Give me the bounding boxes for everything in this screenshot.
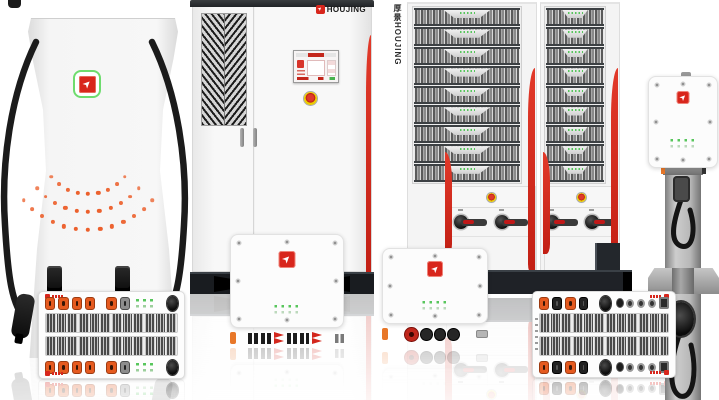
module-handle-notch [562,10,588,18]
module-slot [414,144,520,162]
connector-redarr [312,348,323,360]
module-fan-grille [539,313,669,333]
wall-box-face [382,368,488,400]
module-side-ticks [535,318,538,354]
module-led-row [568,70,583,72]
connector-darkround [435,329,446,340]
door-handle-left [240,128,244,147]
estop-band [447,384,535,400]
connector-blackpair [287,349,297,360]
charging-gun-right [148,377,173,400]
module-led-row [568,148,583,150]
brand-logo-icon [677,91,690,104]
connector-darkround [448,353,459,364]
connector-orange [72,361,82,374]
connector-orange [45,297,55,310]
status-led-grid [275,305,300,314]
module-slot [414,27,520,45]
connector-darksq [659,297,669,309]
bottom-connector-row [382,326,488,342]
brand-text-mini [52,383,64,386]
connector-orange [106,361,116,374]
connector-roundS [617,299,623,307]
brand-text-mini [650,371,662,374]
module-slot [546,125,604,143]
hmi-value-cells [327,60,336,76]
rotary-switch-handle [461,367,487,374]
estop-band [545,384,617,400]
wall-box-face [648,76,718,168]
indicator-dot [142,207,146,211]
connector-orange [565,297,575,310]
connector-redround [405,328,418,341]
rotary-switch [454,214,487,230]
module-led-row [568,168,583,170]
connector-orange [565,361,575,374]
brand-logo-mini [664,370,669,375]
connector-orange [72,297,82,310]
indicator-dot [123,175,127,179]
module-handle-notch [444,29,491,37]
rotary-switch-handle [552,219,578,226]
red-accent-stripe [366,35,371,272]
indicator-dot [36,187,40,191]
wall-box-inverter-1 [230,346,344,400]
module-handle-notch [444,127,491,135]
rectifier-module-wide [532,291,676,378]
red-accent-stripe [445,338,452,400]
module-handle-notch [562,146,588,154]
connector-roundL [167,360,178,375]
indicator-dot [66,187,70,191]
connector-orange [539,383,549,396]
indicator-dot [108,206,112,210]
module-led-row [568,109,583,111]
connector-orange [58,297,68,310]
cabinet-doors: HOUJING [192,7,372,272]
rotary-switch-handle [461,219,487,226]
connector-ringS [637,299,645,308]
connector-ringS [637,385,645,394]
module-bay [412,6,522,184]
bottom-connector-row [230,330,344,346]
estop-band [545,187,617,208]
connector-orange [539,297,549,310]
module-fan-grille [45,336,178,356]
indicator-dot [30,207,34,211]
module-connector-row-top [533,295,675,311]
hmi-logo-block [297,60,304,68]
indicator-dot [115,182,119,186]
door-handle-right [253,128,257,147]
hmi-display [293,50,339,83]
connector-orange [106,297,116,310]
indicator-dot [44,195,48,199]
brand-logo-icon [279,251,296,268]
emergency-stop-button [577,391,586,400]
module-handle-notch [444,10,491,18]
brand-wordmark-text: HOUJING [327,5,366,14]
connector-darkround [448,329,459,340]
indicator-dot [50,220,54,224]
module-handle-notch [562,88,588,96]
status-led-grid [275,378,300,387]
brand-logo-mini [45,371,50,376]
connector-darkround [421,353,432,364]
connector-orange [565,383,575,396]
connector-redarr [274,332,285,344]
module-slot [414,66,520,84]
connector-orangeclip [230,348,236,360]
module-handle-notch [444,88,491,96]
module-led-row [460,12,475,14]
power-rack-2 [540,2,620,272]
indicator-dot [86,228,90,232]
connector-orange [85,297,95,310]
module-handle-notch [562,29,588,37]
module-led-row [460,70,475,72]
module-led-row [460,31,475,33]
connector-ringS [626,299,634,308]
module-slot [546,105,604,123]
red-accent-stripe [543,152,550,254]
breaker-switch-row [447,355,535,384]
module-slot [546,144,604,162]
connector-blackpair [287,333,297,344]
connector-gray [120,361,130,374]
indicator-dot [49,175,53,179]
rectifier-module-stack [38,291,185,379]
indicator-dot [96,191,100,195]
hmi-titlebar [296,53,336,57]
module-brand-badge [45,371,64,376]
connector-ringS [648,299,656,308]
module-handle-notch [444,146,491,154]
module-fan-grille [45,313,178,333]
indicator-dot [119,201,123,205]
module-led-row [568,129,583,131]
red-accent-stripe [528,68,535,274]
module-slot [414,125,520,143]
rotary-switch-handle [502,367,528,374]
connector-roundL [600,382,612,397]
connector-orange [85,385,95,398]
indicator-dot [121,220,125,224]
module-handle-notch [444,49,491,57]
power-rack-1 [407,2,537,272]
gun-holster-upper [673,176,690,202]
module-handle-notch [562,107,588,115]
connector-led4 [136,386,156,396]
module-slot [546,164,604,182]
connector-gray [120,297,130,310]
vertical-brand-label: 厚景HOUJING [392,4,403,70]
ventilation-grille [201,13,247,126]
product-lineup-image: HOUJING 厚景HOUJING [0,0,719,400]
bottom-connector-row [230,346,344,362]
wall-box-inverter-2 [382,346,488,400]
status-led-grid [423,382,448,391]
brand-logo-mini [45,382,50,387]
emergency-stop-button [577,193,586,202]
connector-ringS [637,363,645,372]
connector-dark [552,361,562,374]
module-handle-notch [562,49,588,57]
connector-roundL [167,296,178,311]
connector-dark [552,383,562,396]
connector-darkround [421,329,432,340]
module-led-row [460,90,475,92]
module-handle-notch [444,107,491,115]
indicator-dot [110,224,114,228]
wall-box-inverter-1 [230,234,344,346]
hmi-chart-area [307,60,325,76]
connector-dark [579,297,589,310]
module-brand-badge [45,382,64,387]
connector-dark [552,297,562,310]
module-slot [546,47,604,65]
module-bay [544,6,606,184]
brand-logo-icon [316,5,325,14]
module-led-row [568,12,583,14]
red-accent-stripe [366,316,371,400]
emergency-stop-button [487,391,496,400]
rotary-switch [495,214,528,230]
indicator-dot [57,182,61,186]
indicator-dot [129,195,133,199]
indicator-dot [151,198,155,202]
indicator-dot [75,191,79,195]
connector-blackpair [300,349,310,360]
bottom-connector-row [382,350,488,366]
module-led-row [460,168,475,170]
connector-graypair [335,350,344,359]
indicator-dot [22,198,26,202]
brand-logo-icon [427,261,443,277]
connector-led4 [136,362,156,372]
indicator-dot [40,214,44,218]
connector-gray [120,385,130,398]
red-accent-stripe [445,152,452,254]
wall-box-inverter-2 [382,248,488,346]
connector-blackpair [248,333,258,344]
rotary-switch [495,362,528,378]
module-slot [546,8,604,26]
connector-orange [58,385,68,398]
connector-orangeclip [382,328,388,340]
indicator-dot [86,210,90,214]
connector-ringS [626,363,634,372]
breaker-switch-row [447,208,535,237]
connector-blackpair [261,333,271,344]
emergency-stop-button [304,92,317,105]
connector-orange [85,361,95,374]
connector-dark [579,361,589,374]
module-slot [546,86,604,104]
connector-graybracket [476,354,488,362]
module-led-row [460,148,475,150]
connector-orange [45,385,55,398]
module-slot [546,27,604,45]
module-led-row [568,31,583,33]
connector-roundS [617,363,623,371]
connector-led4 [136,298,156,308]
status-led-grid [671,139,696,148]
indicator-dot [62,224,66,228]
connector-orange [539,361,549,374]
connector-redarr [274,348,285,360]
cable-hook-left [47,266,62,293]
indicator-dot [74,209,78,213]
module-slot [414,105,520,123]
emergency-stop-button [487,193,496,202]
module-connector-row-top [39,295,184,311]
indicator-dot [137,187,141,191]
module-led-row [460,129,475,131]
connector-roundL [600,360,612,375]
module-fan-grille [539,336,669,356]
charging-gun-left [10,377,35,400]
indicator-dot [132,214,136,218]
connector-redarr [312,332,323,344]
wall-box-face [382,248,488,324]
indicator-dot [106,187,110,191]
connector-graybracket [476,330,488,338]
connector-orange [72,385,82,398]
rotary-switch-knob [495,363,509,377]
module-slot [414,86,520,104]
indicator-dot [86,192,90,196]
rotary-switch-handle [502,219,528,226]
hmi-footer-bar [297,77,335,81]
indicator-dot [53,201,57,205]
module-handle-notch [562,68,588,76]
rotary-switch [454,362,487,378]
connector-darkround [435,353,446,364]
module-led-row [568,90,583,92]
indicator-dot [63,206,67,210]
connector-orangeclip [230,332,236,344]
connector-orangeclip [382,352,388,364]
connector-redround [405,352,418,365]
connector-roundS [617,385,623,393]
module-led-row [568,51,583,53]
wall-box-face [230,234,344,328]
module-slot [414,164,520,182]
estop-band [447,187,535,208]
module-handle-notch [444,68,491,76]
module-connector-row-bottom [39,383,184,399]
indicator-dot [98,227,102,231]
connector-blackpair [248,349,258,360]
module-handle-notch [562,166,588,174]
indicator-dot [97,209,101,213]
connector-blackpair [261,349,271,360]
module-led-row [460,51,475,53]
module-brand-badge [650,370,669,375]
wall-box-face [230,364,344,400]
status-led-grid [423,301,448,310]
module-slot [414,8,520,26]
connector-ringS [626,385,634,394]
connector-dark [579,383,589,396]
vertical-brand-text: 厚景HOUJING [392,4,403,65]
connector-blackpair [300,333,310,344]
rectifier-module-stack [38,379,185,400]
connector-roundL [600,296,612,311]
rotary-switch-knob [454,363,468,377]
breaker-switch-row [545,208,617,237]
module-slot [546,66,604,84]
brand-wordmark: HOUJING [316,4,366,15]
connector-orange [106,385,116,398]
module-led-row [460,109,475,111]
connector-roundL [167,384,178,399]
connector-graypair [335,334,344,343]
indicator-dot [74,227,78,231]
module-slot [414,47,520,65]
module-handle-notch [562,127,588,135]
cable-hook-right [115,266,130,293]
wall-box-small [648,76,718,168]
brand-text-mini [52,372,64,375]
